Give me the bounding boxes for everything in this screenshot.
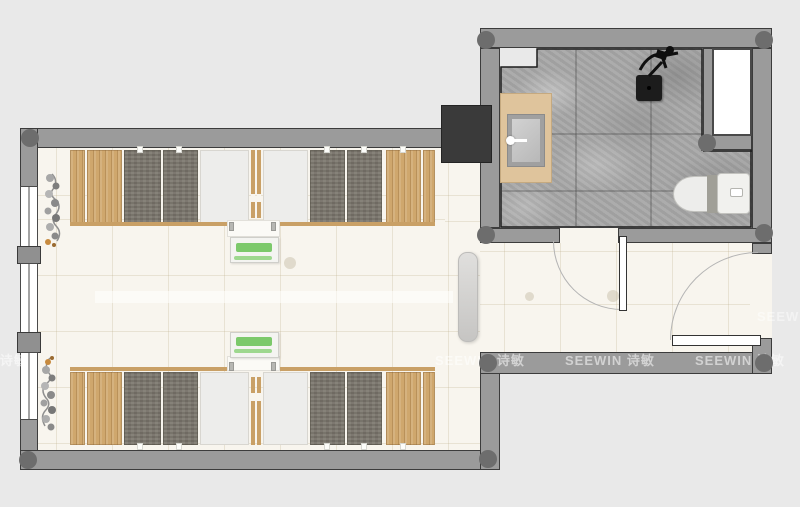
pillow-tab bbox=[137, 146, 143, 153]
bathroom-door-leaf bbox=[619, 236, 627, 311]
wall-niche bbox=[712, 48, 752, 136]
bed-mattress bbox=[124, 372, 161, 445]
pillow-tab bbox=[324, 443, 330, 450]
column-marker bbox=[755, 224, 773, 242]
bunk-ladder-rail bbox=[257, 377, 261, 445]
bench-hook bbox=[271, 362, 276, 371]
wall-main-bottom bbox=[20, 450, 500, 470]
shower-valve-icon bbox=[632, 42, 690, 80]
desk-panel bbox=[200, 150, 249, 223]
desk-panel bbox=[263, 150, 308, 223]
watermark: SEEWIN 诗敏 bbox=[0, 350, 28, 369]
floor-highlight bbox=[95, 291, 453, 303]
pillow-tab bbox=[176, 443, 182, 450]
wardrobe-panel bbox=[386, 150, 421, 223]
wall-main-top bbox=[20, 128, 445, 148]
watermark: SEEWIN 诗敏 bbox=[757, 306, 800, 325]
floor-drain bbox=[525, 292, 534, 301]
column-marker bbox=[698, 134, 716, 152]
column-marker bbox=[21, 129, 39, 147]
column-marker bbox=[477, 31, 495, 49]
wardrobe-strip bbox=[423, 150, 435, 223]
mirror-cabinet bbox=[458, 252, 478, 342]
pillow-tab bbox=[400, 443, 406, 450]
wall-bath-top bbox=[480, 28, 772, 48]
entry-door-leaf bbox=[672, 335, 761, 346]
bed-mattress bbox=[163, 150, 198, 223]
bed-mattress bbox=[124, 150, 161, 223]
window bbox=[20, 186, 38, 247]
pillow-tab bbox=[176, 146, 182, 153]
pillow-tab bbox=[137, 443, 143, 450]
window bbox=[20, 263, 38, 333]
pillow-tab bbox=[400, 146, 406, 153]
column-marker bbox=[477, 226, 495, 244]
column-marker bbox=[755, 354, 773, 372]
bench-cushion-green bbox=[234, 349, 272, 353]
bunk-ladder-rail bbox=[251, 150, 255, 218]
desk-panel bbox=[263, 372, 308, 445]
bench-cushion-green bbox=[234, 256, 272, 260]
wardrobe-strip bbox=[70, 372, 85, 445]
wardrobe-strip bbox=[423, 372, 435, 445]
toilet-flush-button bbox=[730, 188, 743, 197]
bunk-ladder-rail bbox=[251, 377, 255, 445]
desk-panel bbox=[200, 372, 249, 445]
bed-mattress bbox=[347, 372, 382, 445]
column-marker bbox=[19, 451, 37, 469]
wall-bath-bottom-right bbox=[618, 228, 772, 243]
watermark: SEEWIN 诗敏 bbox=[565, 350, 655, 369]
wall-pier bbox=[17, 246, 41, 264]
shower-head-center bbox=[647, 86, 651, 90]
floor-drain bbox=[284, 257, 296, 269]
pillow-tab bbox=[361, 146, 367, 153]
bench-hook bbox=[229, 362, 234, 371]
column-marker bbox=[755, 31, 773, 49]
bench-cushion-green bbox=[236, 337, 272, 346]
wardrobe-panel bbox=[87, 372, 122, 445]
wardrobe-strip bbox=[70, 150, 85, 223]
wardrobe-panel bbox=[386, 372, 421, 445]
bunk-ladder-rail bbox=[257, 150, 261, 218]
bench-hook bbox=[271, 222, 276, 231]
column-marker bbox=[479, 354, 497, 372]
plant-decor bbox=[42, 170, 64, 248]
storage-cabinet bbox=[441, 105, 492, 163]
bed-mattress bbox=[163, 372, 198, 445]
wardrobe-panel bbox=[87, 150, 122, 223]
pillow-tab bbox=[361, 443, 367, 450]
wall-bath-right bbox=[752, 48, 772, 243]
bed-mattress bbox=[310, 150, 345, 223]
faucet-spout bbox=[514, 139, 527, 142]
bench-hook bbox=[229, 222, 234, 231]
floor-plan: SEEWIN 诗敏 SEEWIN 诗敏 SEEWIN 诗敏 SEEWIN 诗敏 … bbox=[0, 0, 800, 507]
plant-decor bbox=[38, 352, 60, 432]
nook-floor bbox=[445, 162, 480, 244]
bed-mattress bbox=[347, 150, 382, 223]
bed-mattress bbox=[310, 372, 345, 445]
pillow-tab bbox=[324, 146, 330, 153]
bench-cushion-green bbox=[236, 243, 272, 252]
column-marker bbox=[479, 450, 497, 468]
